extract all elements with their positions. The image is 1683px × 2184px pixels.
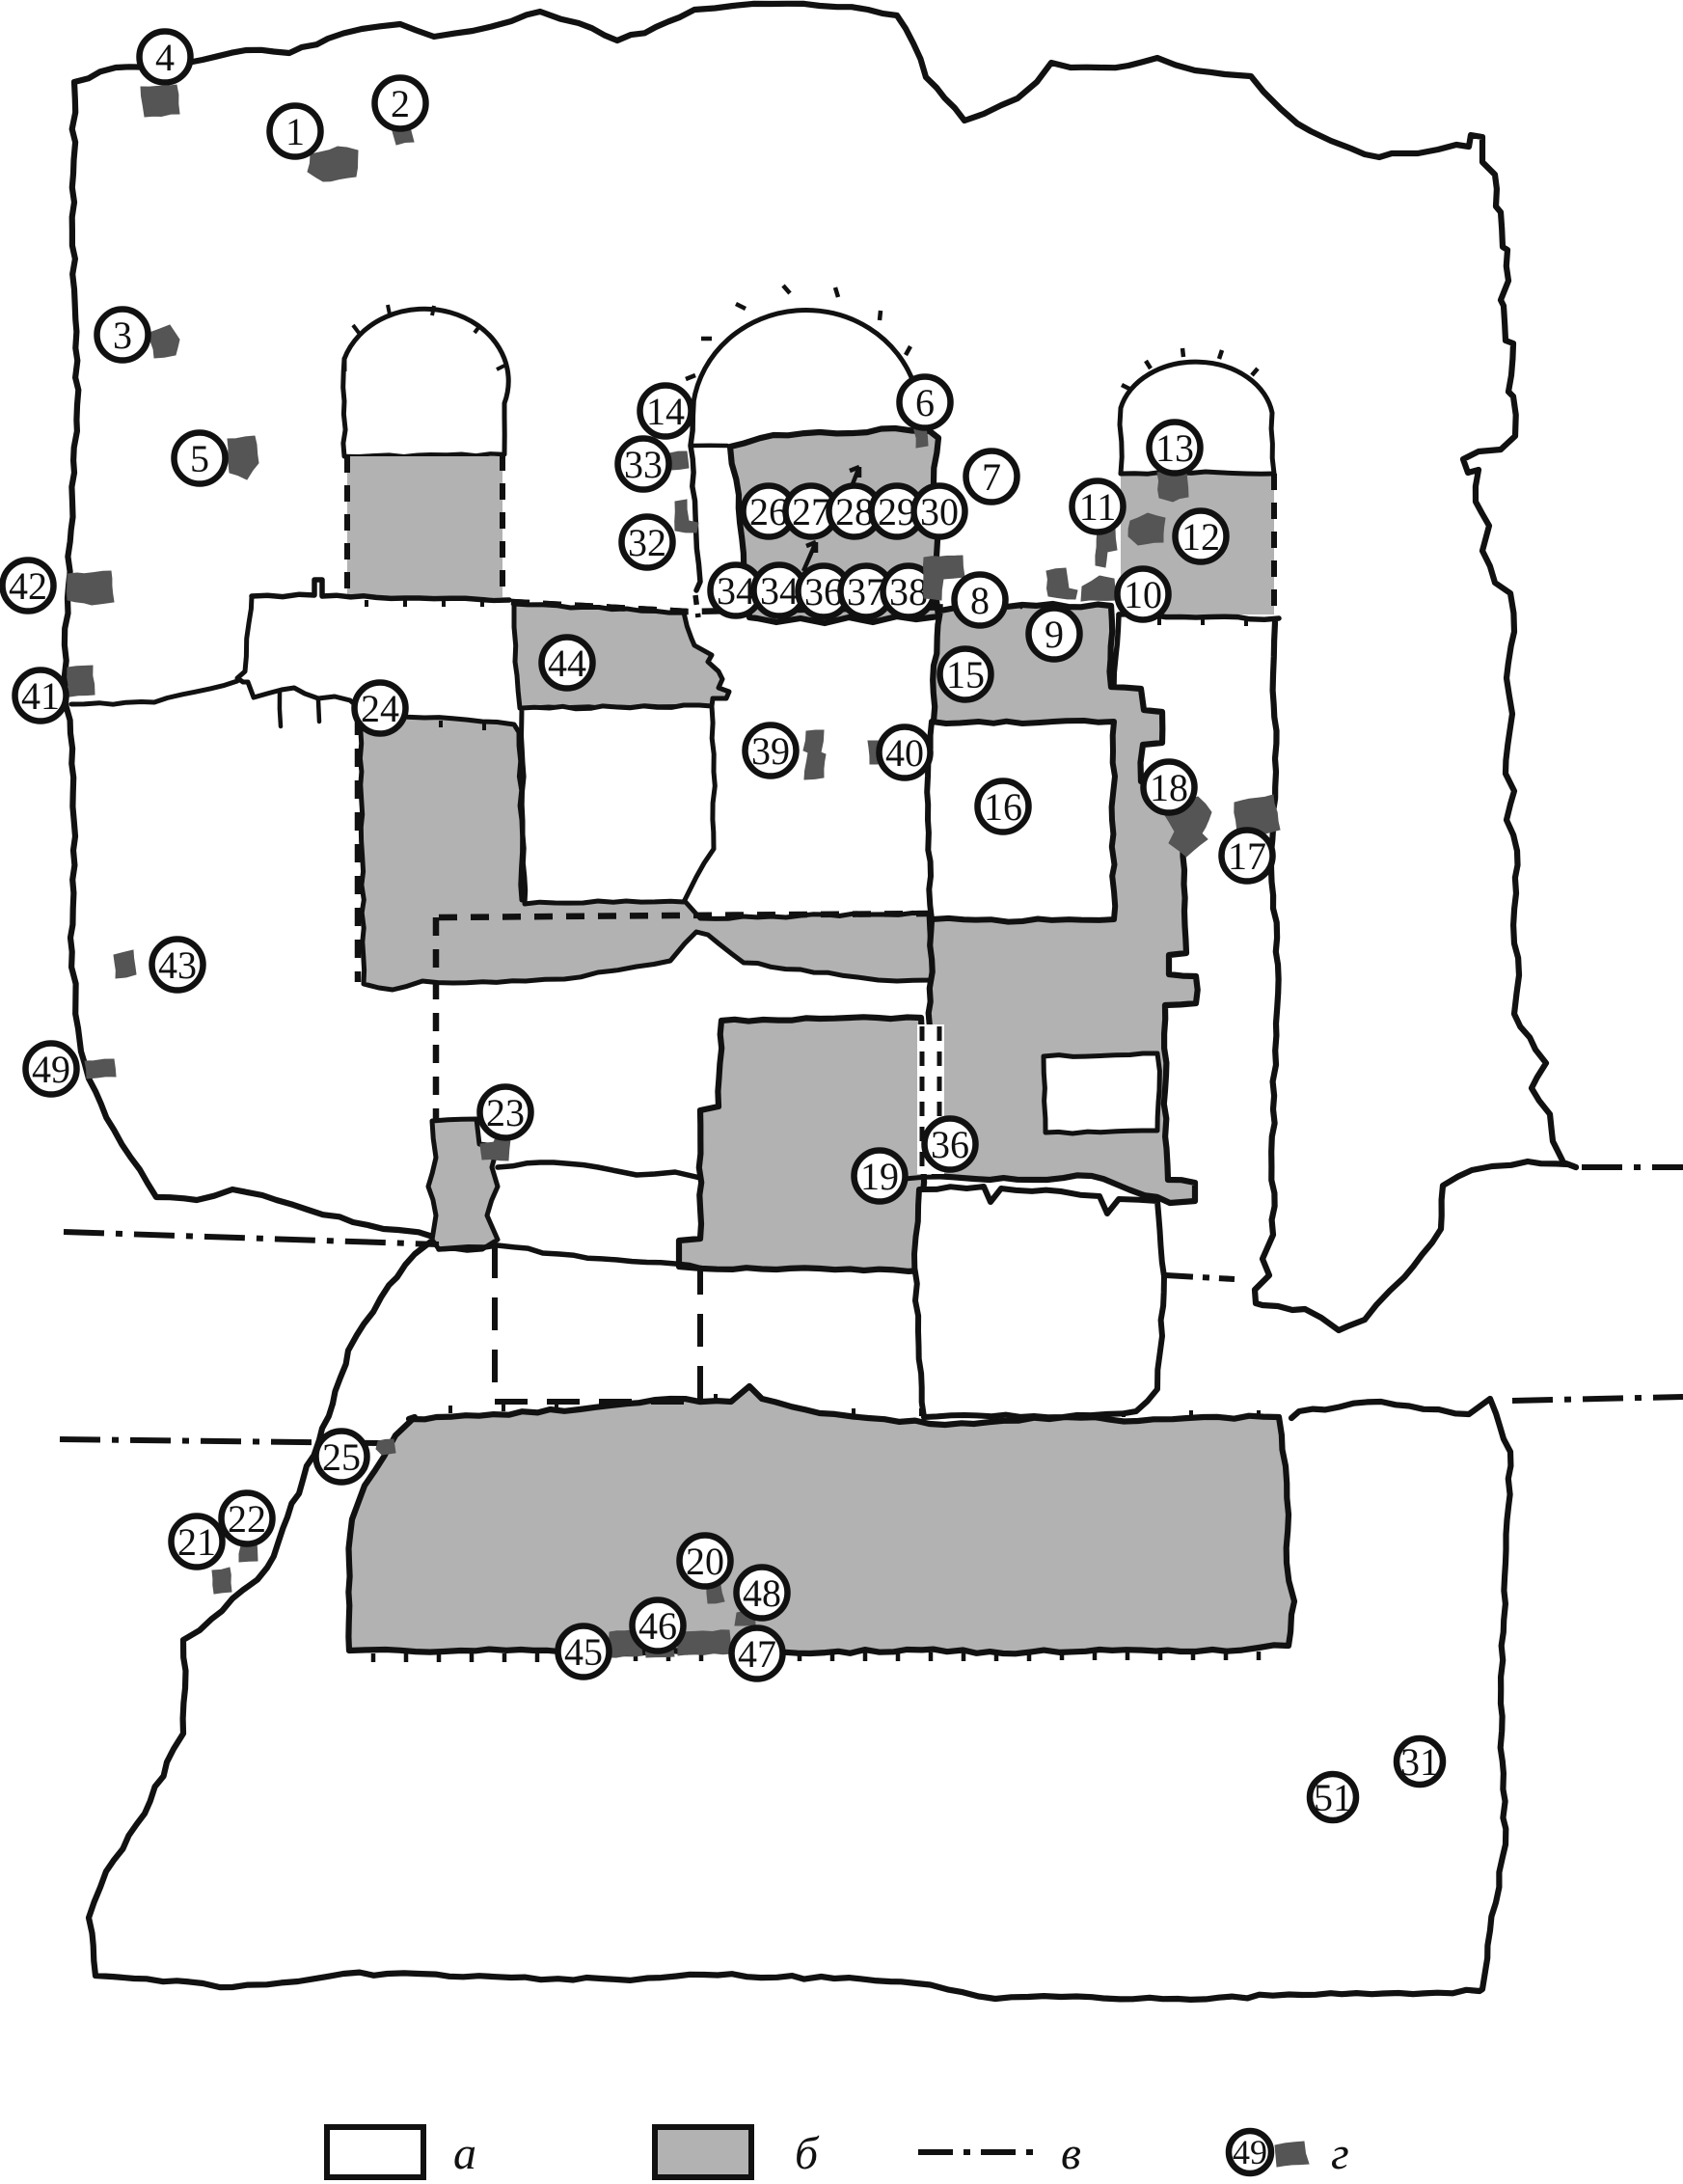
- svg-text:37: 37: [847, 570, 885, 614]
- svg-text:6: 6: [915, 381, 935, 424]
- svg-text:34: 34: [760, 569, 799, 613]
- svg-text:40: 40: [885, 731, 924, 775]
- svg-text:39: 39: [751, 729, 790, 773]
- svg-text:51: 51: [1314, 1776, 1352, 1819]
- svg-text:в: в: [1061, 2128, 1081, 2179]
- svg-text:13: 13: [1155, 426, 1194, 470]
- svg-text:36: 36: [931, 1123, 969, 1166]
- svg-text:21: 21: [177, 1520, 216, 1564]
- svg-text:41: 41: [21, 674, 60, 718]
- svg-text:29: 29: [878, 490, 916, 533]
- svg-text:г: г: [1331, 2128, 1349, 2179]
- svg-text:18: 18: [1150, 766, 1188, 809]
- svg-text:45: 45: [564, 1630, 603, 1674]
- svg-text:б: б: [795, 2128, 820, 2179]
- svg-text:46: 46: [638, 1604, 677, 1648]
- svg-text:4: 4: [155, 36, 175, 79]
- svg-text:26: 26: [749, 490, 788, 533]
- svg-text:11: 11: [1079, 485, 1117, 529]
- svg-text:1: 1: [285, 110, 305, 153]
- svg-text:25: 25: [322, 1435, 361, 1479]
- svg-text:22: 22: [228, 1497, 266, 1541]
- svg-text:5: 5: [190, 437, 209, 480]
- svg-text:20: 20: [686, 1540, 724, 1583]
- svg-text:38: 38: [889, 570, 928, 614]
- svg-text:48: 48: [743, 1571, 781, 1615]
- svg-text:23: 23: [486, 1091, 525, 1134]
- svg-text:27: 27: [792, 490, 830, 533]
- svg-text:16: 16: [984, 785, 1022, 829]
- svg-text:28: 28: [835, 490, 874, 533]
- svg-text:43: 43: [158, 943, 197, 987]
- svg-text:32: 32: [628, 521, 666, 564]
- svg-text:8: 8: [970, 579, 990, 622]
- svg-text:19: 19: [860, 1155, 899, 1198]
- svg-text:7: 7: [982, 455, 1001, 499]
- svg-text:31: 31: [1400, 1740, 1439, 1784]
- svg-text:а: а: [453, 2128, 476, 2179]
- svg-text:49: 49: [32, 1048, 70, 1091]
- svg-text:24: 24: [361, 687, 399, 730]
- svg-text:34: 34: [717, 569, 755, 613]
- svg-text:3: 3: [113, 314, 132, 357]
- svg-text:30: 30: [920, 490, 959, 533]
- svg-text:42: 42: [9, 564, 47, 608]
- svg-text:12: 12: [1181, 515, 1220, 559]
- svg-text:47: 47: [738, 1632, 776, 1676]
- svg-text:2: 2: [391, 82, 410, 125]
- svg-text:44: 44: [548, 642, 586, 685]
- svg-text:33: 33: [624, 443, 663, 486]
- svg-text:10: 10: [1124, 573, 1162, 616]
- svg-text:15: 15: [946, 653, 985, 696]
- svg-text:9: 9: [1045, 613, 1064, 656]
- svg-text:17: 17: [1228, 834, 1266, 878]
- svg-text:14: 14: [646, 390, 685, 433]
- svg-text:36: 36: [804, 570, 843, 614]
- svg-text:49: 49: [1233, 2133, 1267, 2171]
